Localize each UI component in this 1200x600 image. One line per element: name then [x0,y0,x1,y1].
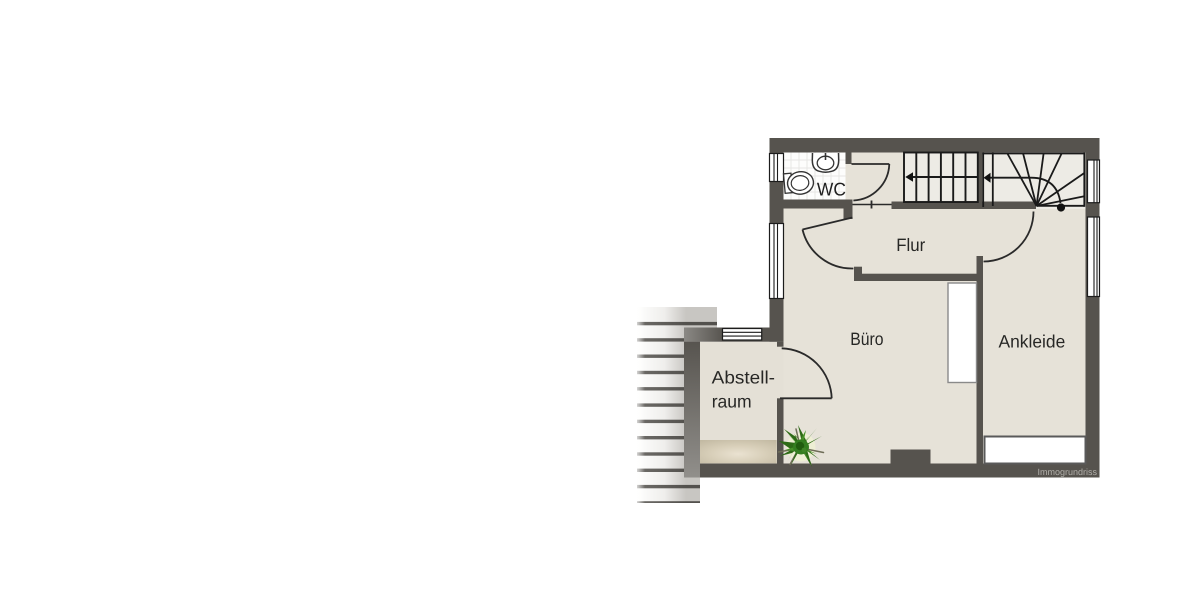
svg-text:raum: raum [712,392,752,412]
svg-text:Büro: Büro [850,329,883,349]
svg-text:WC: WC [817,178,846,199]
svg-text:Abstell-: Abstell- [712,368,775,388]
svg-text:Immogrundriss: Immogrundriss [1037,467,1097,477]
svg-text:Ankleide: Ankleide [999,331,1066,351]
svg-text:Flur: Flur [896,235,925,255]
